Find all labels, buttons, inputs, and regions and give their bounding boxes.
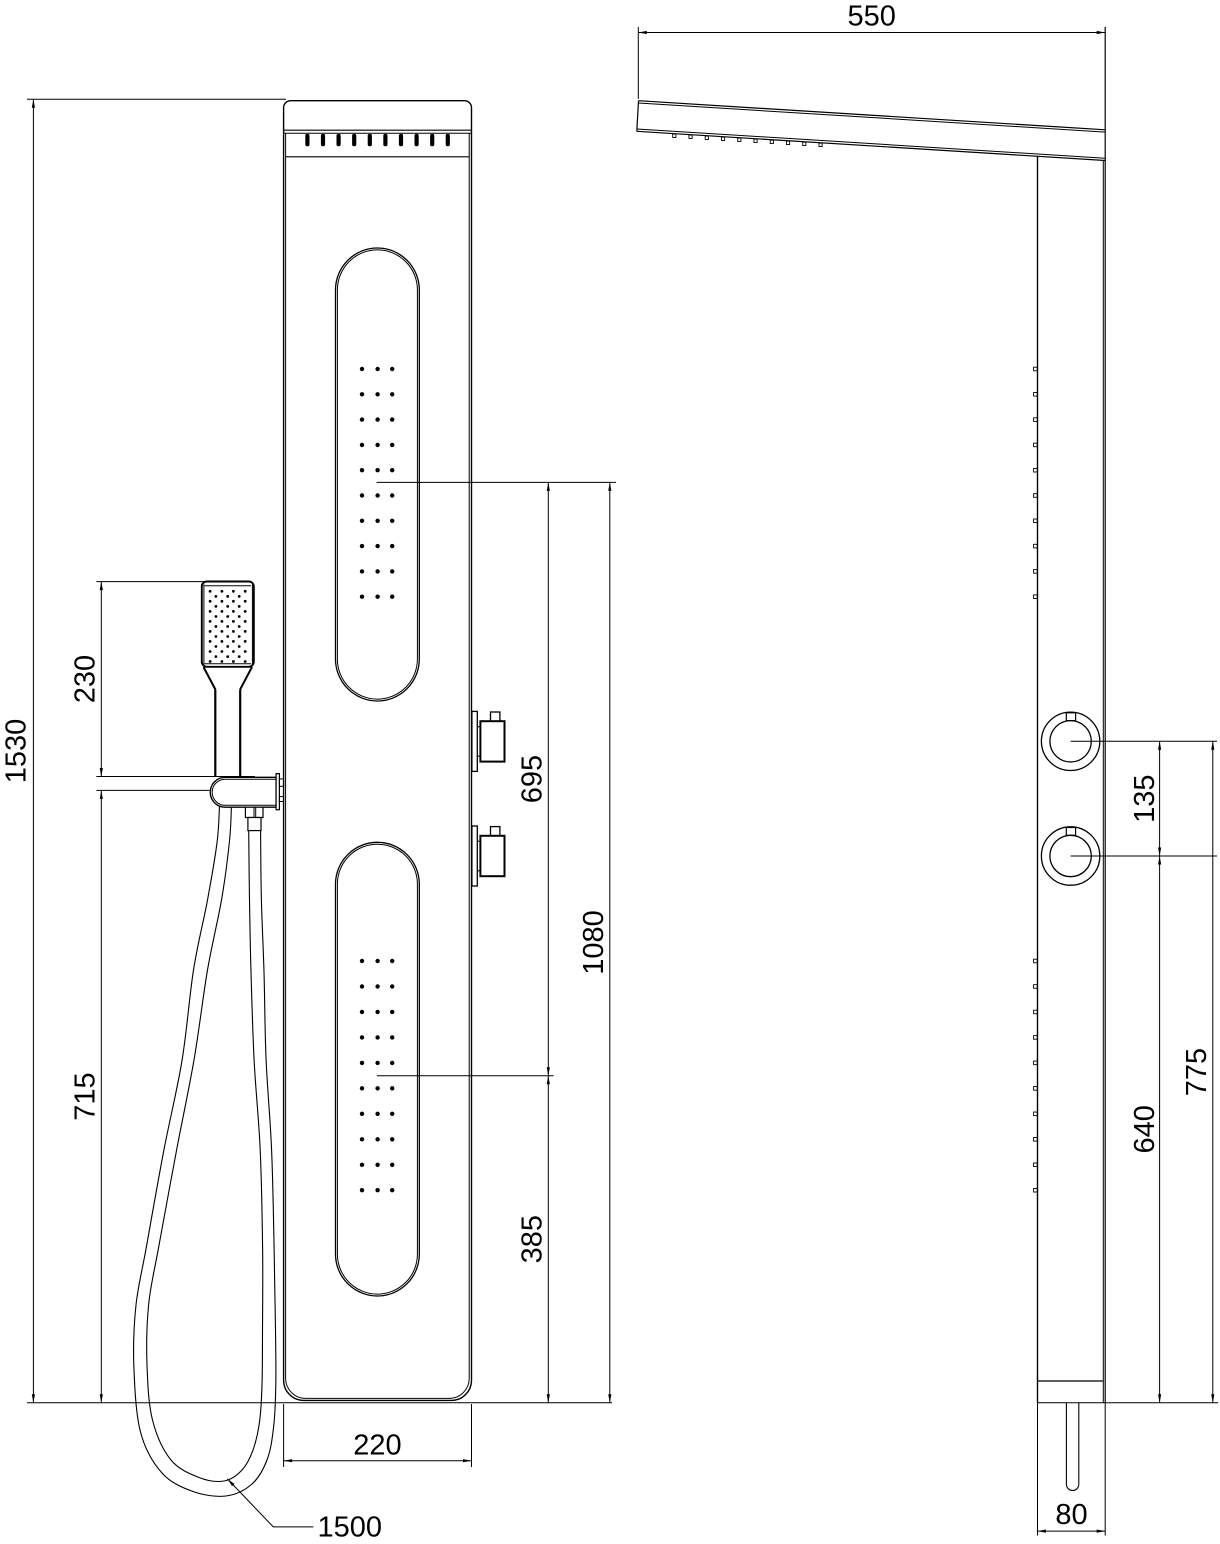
svg-text:385: 385 [517,1215,549,1263]
svg-text:640: 640 [1129,1105,1161,1153]
svg-text:230: 230 [70,655,102,703]
svg-text:1500: 1500 [318,1512,383,1544]
svg-text:80: 80 [1055,1499,1087,1531]
svg-text:1530: 1530 [1,719,33,784]
svg-text:135: 135 [1129,775,1161,823]
svg-text:220: 220 [353,1430,401,1462]
svg-text:775: 775 [1181,1048,1213,1096]
svg-text:715: 715 [69,1072,101,1120]
svg-text:550: 550 [848,1,896,33]
svg-text:1080: 1080 [578,910,610,975]
svg-text:695: 695 [517,755,549,803]
